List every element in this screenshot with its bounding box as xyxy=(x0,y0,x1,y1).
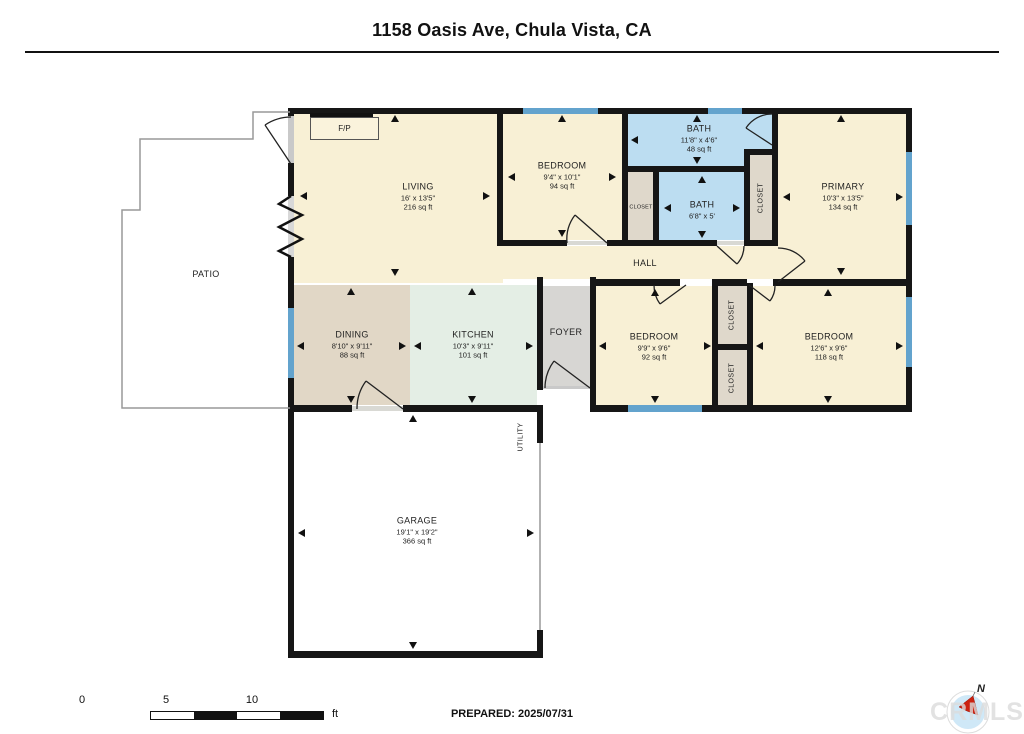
dimension-arrow xyxy=(896,193,903,201)
dimension-arrow xyxy=(558,230,566,237)
wall xyxy=(747,283,753,412)
utility-label: UTILITY xyxy=(516,423,525,452)
dimension-arrow xyxy=(298,529,305,537)
closet-label: CLOSET xyxy=(727,363,736,393)
door-threshold xyxy=(352,406,403,411)
wall xyxy=(622,166,750,172)
scale-tick: 0 xyxy=(79,694,85,706)
dimension-arrow xyxy=(508,173,515,181)
dimension-arrow xyxy=(414,342,421,350)
dimension-arrow xyxy=(609,173,616,181)
dimension-arrow xyxy=(837,115,845,122)
wall xyxy=(537,412,543,443)
window-marker xyxy=(906,297,912,367)
crmls-watermark: CRMLS xyxy=(930,698,1024,727)
door-opening xyxy=(288,116,294,163)
wall xyxy=(288,412,294,658)
page-title: 1158 Oasis Ave, Chula Vista, CA xyxy=(0,20,1024,41)
wall xyxy=(290,651,543,658)
wall xyxy=(403,405,543,412)
room-label-patio: PATIO xyxy=(192,269,219,281)
wall xyxy=(773,279,912,286)
dimension-arrow xyxy=(698,231,706,238)
window-marker xyxy=(906,152,912,225)
scale-tick: 5 xyxy=(163,694,169,706)
wall xyxy=(622,240,717,246)
dimension-arrow xyxy=(896,342,903,350)
dimension-arrow xyxy=(527,529,534,537)
dimension-arrow xyxy=(409,642,417,649)
room-label-foyer: FOYER xyxy=(550,327,583,339)
dimension-arrow xyxy=(599,342,606,350)
dimension-arrow xyxy=(399,342,406,350)
dimension-arrow xyxy=(698,176,706,183)
room-label-living: LIVING 16' x 13'5" 216 sq ft xyxy=(401,181,435,212)
dimension-arrow xyxy=(631,136,638,144)
door-threshold xyxy=(543,386,590,389)
wall xyxy=(537,277,543,390)
dimension-arrow xyxy=(651,396,659,403)
fireplace-label: F/P xyxy=(310,117,379,140)
closet-label: CLOSET xyxy=(727,300,736,330)
slider-opening xyxy=(288,196,294,257)
dimension-arrow xyxy=(297,342,304,350)
door-threshold xyxy=(567,241,607,245)
wall xyxy=(497,240,567,246)
dimension-arrow xyxy=(391,115,399,122)
dimension-arrow xyxy=(783,193,790,201)
dimension-arrow xyxy=(704,342,711,350)
room-label-primary: PRIMARY 10'3" x 13'5" 134 sq ft xyxy=(822,181,865,212)
scale-tick: 10 xyxy=(246,694,258,706)
wall xyxy=(537,630,543,658)
room-label-bath-main: BATH 11'8" x 4'6" 48 sq ft xyxy=(681,123,717,154)
dimension-arrow xyxy=(693,115,701,122)
closet-label: CLOSET xyxy=(629,204,652,211)
room-label-bedroom-left: BEDROOM 9'9" x 9'6" 92 sq ft xyxy=(630,331,679,362)
wall xyxy=(590,279,680,286)
window-marker xyxy=(628,405,702,412)
dimension-arrow xyxy=(756,342,763,350)
room-label-garage: GARAGE 19'1" x 19'2" 366 sq ft xyxy=(396,515,437,546)
room-label-kitchen: KITCHEN 10'3" x 9'11" 101 sq ft xyxy=(452,329,494,360)
compass-north-label: N xyxy=(977,683,986,695)
dimension-arrow xyxy=(347,288,355,295)
patio-outline xyxy=(122,112,290,408)
wall xyxy=(290,108,912,114)
window-marker xyxy=(708,108,742,114)
dimension-arrow xyxy=(824,396,832,403)
dimension-arrow xyxy=(558,115,566,122)
room-label-dining: DINING 8'10" x 9'11" 88 sq ft xyxy=(332,329,373,360)
room-label-bath-small: BATH 6'8" x 5' xyxy=(689,199,715,220)
dimension-arrow xyxy=(468,396,476,403)
room-label-bedroom-top: BEDROOM 9'4" x 10'1" 94 sq ft xyxy=(538,160,587,191)
door-threshold xyxy=(717,241,744,245)
dimension-arrow xyxy=(824,289,832,296)
prepared-date: PREPARED: 2025/07/31 xyxy=(0,708,1024,720)
dimension-arrow xyxy=(733,204,740,212)
wall xyxy=(590,277,596,412)
wall xyxy=(744,149,750,246)
dimension-arrow xyxy=(391,269,399,276)
wall xyxy=(653,172,659,246)
title-divider xyxy=(25,51,999,53)
closet-label: CLOSET xyxy=(756,183,765,213)
window-marker xyxy=(523,108,598,114)
room-label-hall: HALL xyxy=(633,258,657,270)
window-marker xyxy=(288,308,294,378)
wall xyxy=(290,405,352,412)
wall xyxy=(712,283,718,412)
dimension-arrow xyxy=(409,415,417,422)
room-label-bedroom-right: BEDROOM 12'6" x 9'6" 118 sq ft xyxy=(805,331,854,362)
dimension-arrow xyxy=(526,342,533,350)
dimension-arrow xyxy=(651,289,659,296)
wall xyxy=(497,108,503,246)
dimension-arrow xyxy=(300,192,307,200)
dimension-arrow xyxy=(693,157,701,164)
dimension-arrow xyxy=(347,396,355,403)
wall xyxy=(622,108,628,246)
dimension-arrow xyxy=(483,192,490,200)
wall xyxy=(772,108,778,246)
dimension-arrow xyxy=(837,268,845,275)
floorplan-page: 1158 Oasis Ave, Chula Vista, CA xyxy=(0,0,1024,734)
dimension-arrow xyxy=(664,204,671,212)
dimension-arrow xyxy=(468,288,476,295)
